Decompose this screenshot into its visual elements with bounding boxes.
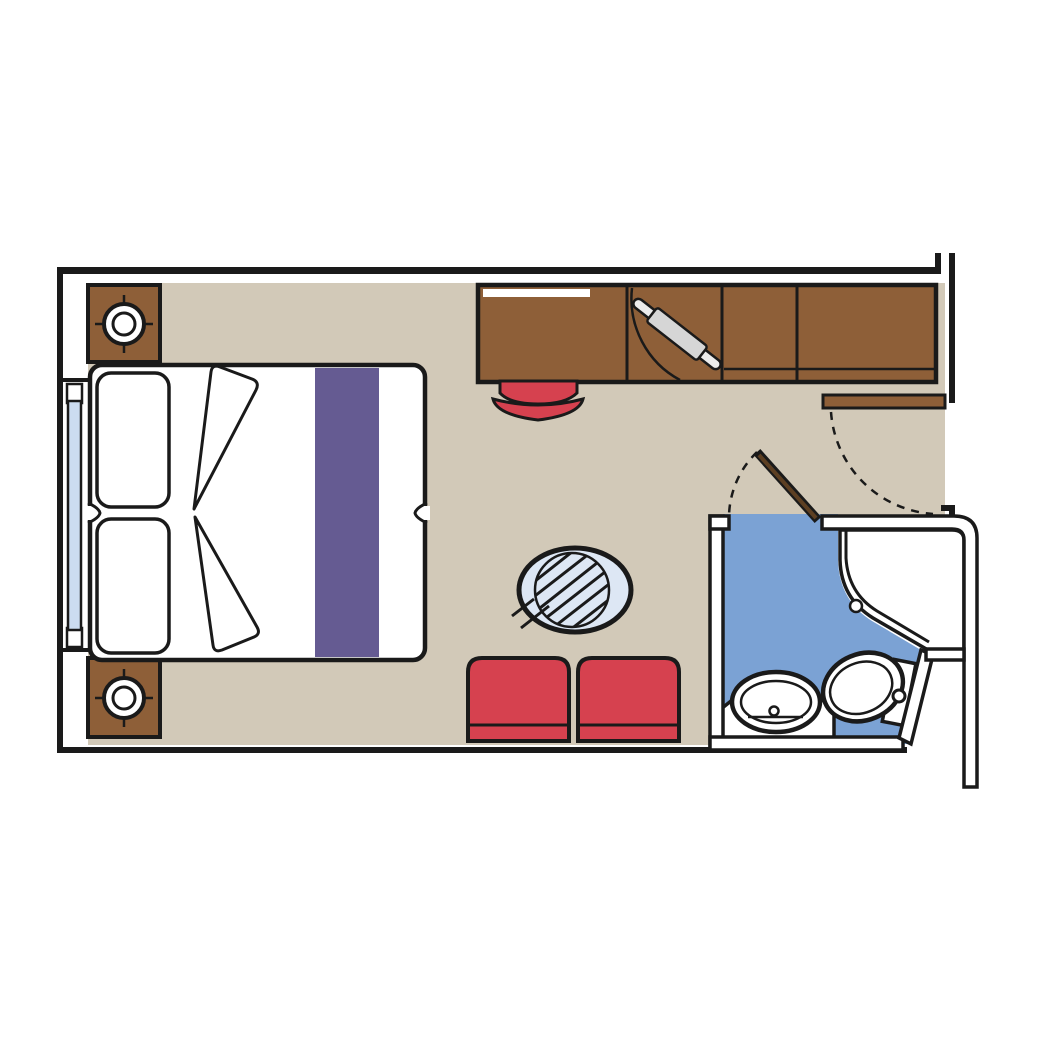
armchair-right [578,658,679,741]
bathroom-wall-top-left [710,516,729,529]
pillow-lower [97,519,169,653]
floor-plan-stage [0,0,1042,1042]
wall-top [57,267,941,274]
entrance-door-leaf [823,395,945,408]
floor-plan-drawing [0,0,1042,1042]
wall-right-upper [949,253,955,403]
window-glass [68,401,81,630]
wall-top-right-return [935,253,941,274]
shower-drain [850,600,862,612]
desk-mirror [483,289,590,297]
desk-wardrobe-unit [478,285,936,382]
bathroom-wall-left [710,516,723,750]
double-bed [85,365,430,660]
wall-left [57,267,63,753]
bathroom-wall-bottom [710,737,903,750]
window-head-line [57,378,90,382]
bed-runner [315,368,379,657]
armchair-left [468,658,569,741]
bed-split-gap-left [85,506,94,520]
washbasin [732,672,820,732]
desk-wardrobe-body [478,285,936,382]
basin-drain [770,707,779,716]
toilet-flush-button [893,690,905,702]
window-sill-line [57,648,90,652]
bed-split-gap-right [421,506,430,520]
bathroom-wall-connector [926,649,964,660]
pillow-upper [97,373,169,507]
